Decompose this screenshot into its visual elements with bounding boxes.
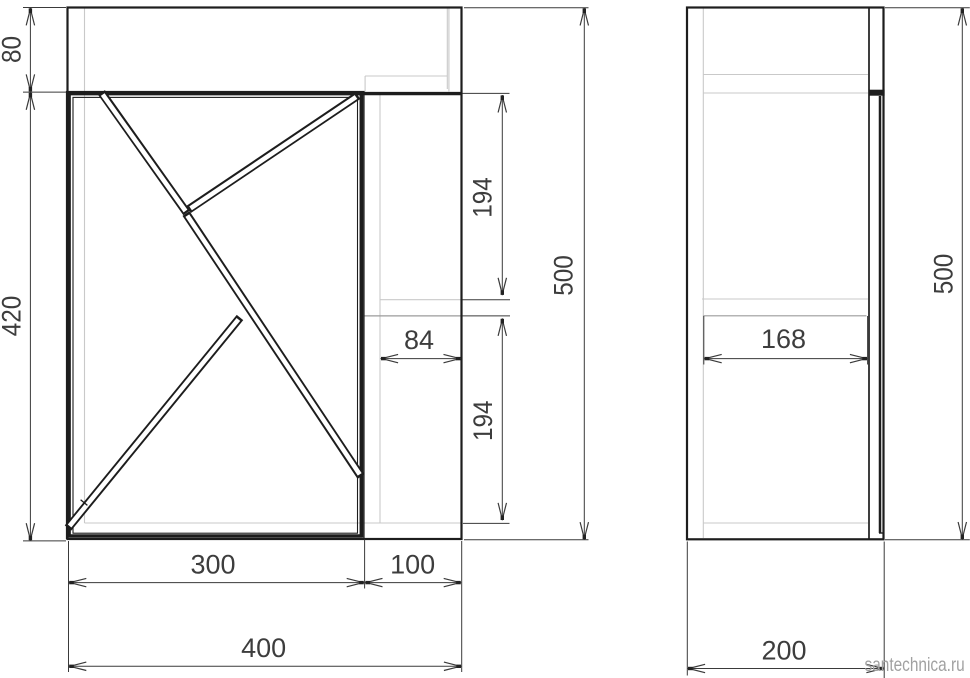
svg-text:194: 194 [469, 177, 498, 218]
svg-text:300: 300 [190, 549, 235, 579]
svg-text:200: 200 [761, 635, 806, 665]
svg-text:194: 194 [469, 400, 498, 441]
svg-text:400: 400 [241, 633, 286, 663]
svg-text:500: 500 [549, 255, 578, 296]
svg-text:80: 80 [0, 36, 27, 63]
svg-text:420: 420 [0, 296, 27, 337]
svg-text:168: 168 [761, 324, 806, 354]
svg-text:84: 84 [404, 325, 434, 355]
svg-text:500: 500 [929, 254, 958, 295]
svg-text:santechnica.ru: santechnica.ru [865, 653, 965, 675]
svg-text:100: 100 [390, 549, 435, 579]
